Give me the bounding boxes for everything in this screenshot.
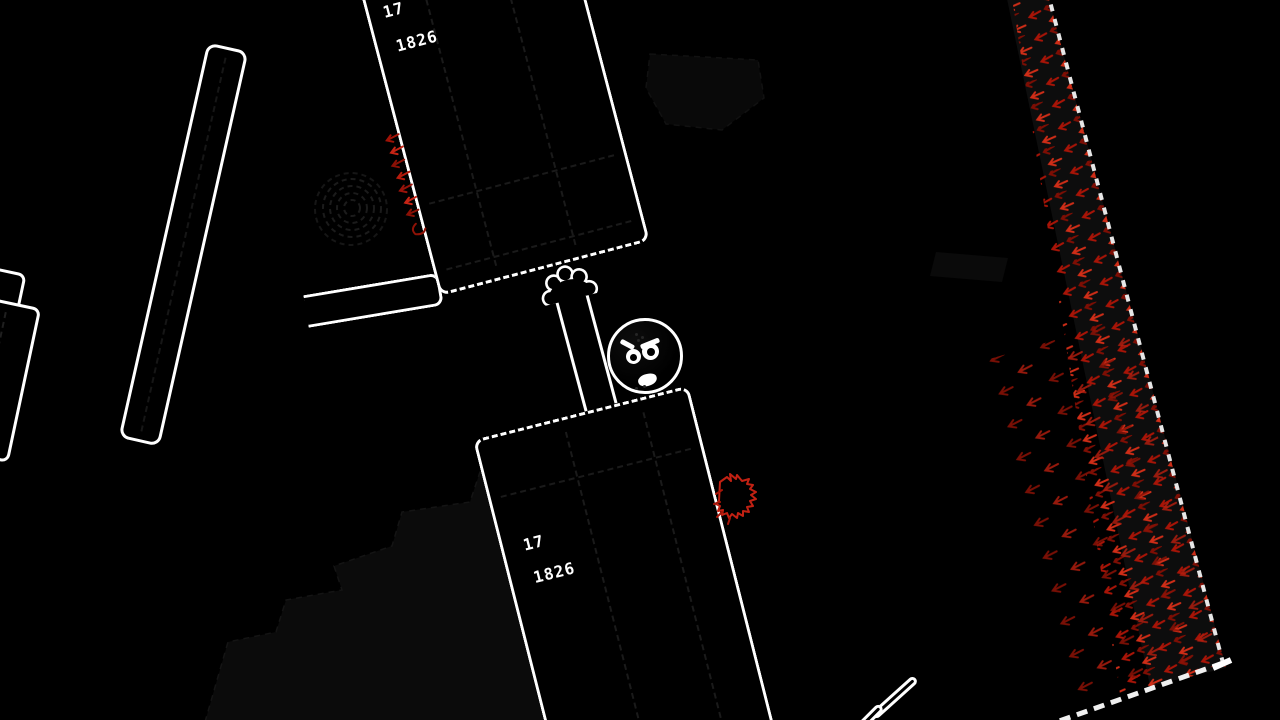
top-platform-counter: 17 — [381, 0, 406, 21]
panel-seam — [492, 0, 576, 245]
bottom-platform-counter: 17 — [522, 533, 547, 554]
plank-seam — [0, 312, 7, 445]
freckle — [641, 336, 644, 339]
freckle — [635, 333, 638, 336]
game-viewport[interactable]: 17 1826 17 1826 — [0, 0, 1280, 720]
spike-band-sparse — [986, 320, 1224, 702]
hazard-scribble — [708, 466, 772, 530]
panel-seam — [429, 154, 614, 204]
freckle — [637, 339, 640, 342]
bottom-platform-score: 1826 — [532, 560, 577, 586]
freckle — [643, 385, 646, 388]
player-ball[interactable] — [607, 318, 683, 394]
angry-mouth — [637, 372, 658, 388]
freckle — [635, 387, 638, 390]
right-pupil — [647, 348, 655, 356]
top-platform-score: 1826 — [394, 28, 439, 54]
left-eyebrow — [620, 339, 635, 350]
left-pupil — [630, 354, 637, 361]
